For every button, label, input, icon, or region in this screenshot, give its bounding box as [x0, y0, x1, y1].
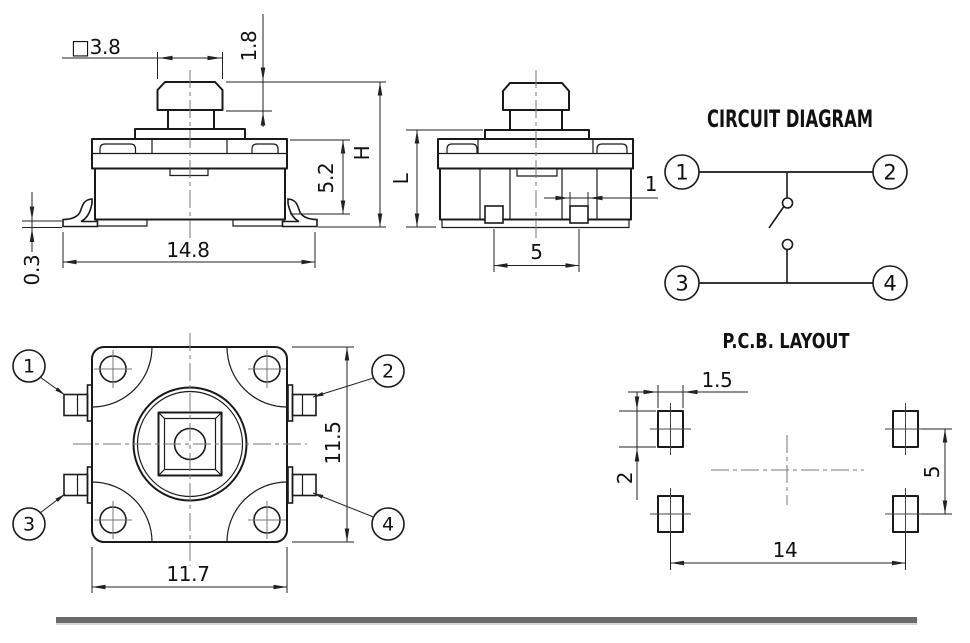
- dim-label-pin-pitch: 5: [530, 240, 542, 264]
- footer-bar-shadow: [56, 623, 917, 625]
- sheet-background: [0, 0, 970, 643]
- tact-switch-drawing: □3.8 1.8 H 5.2 14.8 0.3: [0, 0, 970, 643]
- dim-label-pad-row-pitch: 5: [920, 466, 944, 478]
- pin-right-side: [570, 206, 588, 223]
- balloon-number-2: 2: [382, 361, 394, 383]
- circuit-diagram-title: CIRCUIT DIAGRAM: [707, 105, 873, 133]
- dim-label-pin-width: 1: [645, 172, 657, 196]
- dim-label-pad-width: 1.5: [702, 368, 733, 392]
- terminal-number-3: 3: [675, 271, 688, 295]
- dim-label-pad-col-pitch: 14: [773, 538, 798, 562]
- dim-label-top-width: 11.7: [166, 562, 209, 586]
- dim-label-pad-height: 2: [613, 472, 637, 484]
- dim-label-total-height: H: [350, 146, 374, 161]
- dim-label-body-height: 5.2: [314, 163, 338, 194]
- dim-label-button-width: □3.8: [71, 35, 121, 59]
- terminal-number-1: 1: [675, 160, 688, 184]
- drawing-sheet: □3.8 1.8 H 5.2 14.8 0.3: [0, 0, 970, 643]
- terminal-number-4: 4: [883, 271, 896, 295]
- balloon-number-3: 3: [23, 514, 35, 536]
- balloon-number-4: 4: [382, 514, 394, 536]
- pcb-layout-title: P.C.B. LAYOUT: [723, 329, 850, 353]
- footer-bar-line: [56, 617, 917, 623]
- dim-label-lead-standoff: 0.3: [20, 255, 44, 286]
- dim-label-button-height: 1.8: [237, 31, 261, 62]
- dim-label-lead-span: 14.8: [166, 238, 209, 262]
- dim-label-top-height: 11.5: [321, 421, 345, 464]
- terminal-number-2: 2: [883, 160, 896, 184]
- dim-label-side-height: L: [389, 172, 413, 184]
- pin-left-side: [485, 206, 503, 223]
- footer-bar: [56, 617, 917, 625]
- balloon-number-1: 1: [23, 356, 35, 378]
